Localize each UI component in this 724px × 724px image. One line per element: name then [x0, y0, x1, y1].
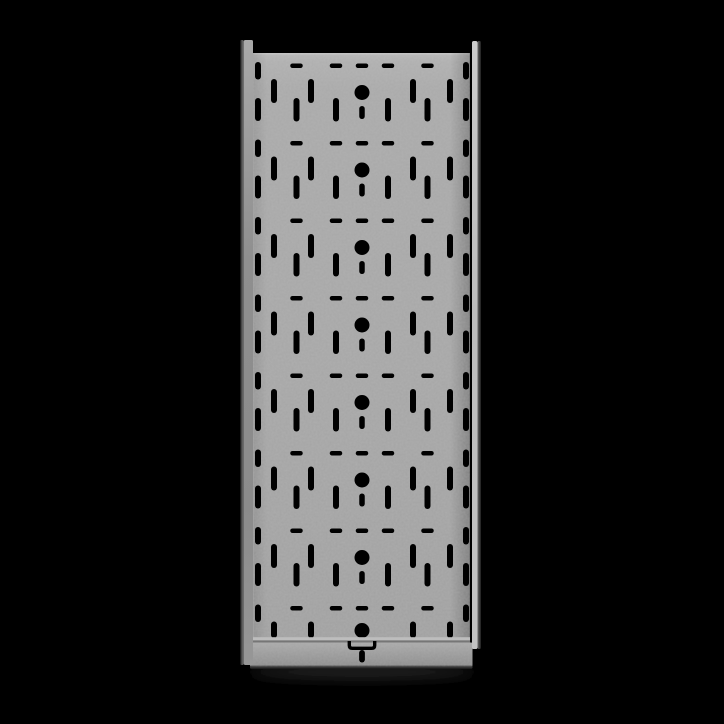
hole-edge-slot — [463, 527, 469, 545]
hole-edge-slot — [463, 372, 469, 390]
hole-inner-slot — [410, 312, 416, 336]
hole-dash — [382, 296, 395, 301]
hole-inner-slot — [410, 79, 416, 103]
hole-dash — [290, 606, 303, 611]
hole-inner-slot — [447, 234, 453, 258]
hole-dash — [382, 219, 395, 224]
hole-dash — [421, 606, 434, 611]
hole-circle — [355, 623, 370, 638]
hole-inner-slot — [410, 389, 416, 413]
hole-dash — [290, 374, 303, 379]
hole-inner-slot — [271, 389, 277, 413]
hole-inner-slot — [308, 157, 314, 181]
hole-inner-slot — [410, 544, 416, 568]
left-wall — [240, 40, 253, 665]
hole-edge-slot — [463, 253, 469, 276]
hole-dash — [382, 606, 395, 611]
cable-tray-render — [0, 0, 724, 724]
hole-inner-slot — [294, 331, 300, 355]
fold-highlight — [253, 637, 470, 640]
hole-dash — [382, 451, 395, 456]
right-wall — [472, 41, 481, 649]
hole-inner-slot — [410, 467, 416, 491]
hole-dash — [330, 374, 343, 379]
hole-inner-slot — [425, 563, 431, 587]
hole-edge-slot — [255, 486, 261, 509]
hole-inner-slot — [447, 467, 453, 491]
hole-dash — [290, 219, 303, 224]
hole-inner-slot — [385, 563, 391, 587]
hole-inner-slot — [410, 234, 416, 258]
hole-inner-slot — [447, 157, 453, 181]
hole-inner-slot — [333, 331, 339, 355]
hole-dash — [330, 219, 343, 224]
hole-inner-slot — [425, 176, 431, 200]
hole-edge-slot — [463, 140, 469, 158]
hole-inner-slot — [425, 98, 431, 122]
hole-inner-slot — [271, 467, 277, 491]
hole-inner-slot — [294, 98, 300, 122]
hole-inner-slot — [294, 253, 300, 277]
hole-inner-slot — [294, 176, 300, 200]
hole-dash — [421, 529, 434, 534]
hole-inner-slot — [308, 544, 314, 568]
hole-inner-slot — [385, 331, 391, 355]
hole-edge-slot — [463, 331, 469, 354]
hole-dash — [356, 141, 369, 146]
scene — [0, 0, 724, 724]
hole-inner-slot — [271, 544, 277, 568]
hole-dash — [330, 529, 343, 534]
hole-inner-slot — [308, 234, 314, 258]
hole-inner-slot — [447, 544, 453, 568]
hole-edge-slot — [463, 408, 469, 431]
hole-center-tick — [359, 571, 365, 584]
hole-center-tick — [359, 416, 365, 429]
hole-dash — [421, 141, 434, 146]
hole-dash — [330, 451, 343, 456]
hole-edge-slot — [255, 176, 261, 199]
hole-edge-slot — [255, 563, 261, 586]
hole-inner-slot — [294, 408, 300, 432]
hole-inner-slot — [333, 253, 339, 277]
hole-inner-slot — [447, 622, 453, 639]
hole-edge-slot — [255, 408, 261, 431]
hole-dash — [356, 64, 369, 69]
hole-dash — [356, 374, 369, 379]
hole-circle — [355, 550, 370, 565]
hole-inner-slot — [385, 176, 391, 200]
hole-edge-slot — [255, 527, 261, 545]
hole-inner-slot — [410, 157, 416, 181]
hole-edge-slot — [463, 62, 469, 80]
hole-inner-slot — [333, 176, 339, 200]
hole-dash — [356, 606, 369, 611]
hole-dash — [330, 141, 343, 146]
hole-dash — [290, 64, 303, 69]
hole-inner-slot — [425, 486, 431, 510]
hole-inner-slot — [271, 234, 277, 258]
hole-edge-slot — [255, 450, 261, 468]
fold-shadow — [253, 640, 470, 642]
hole-dash — [356, 219, 369, 224]
hole-edge-slot — [255, 605, 261, 623]
hole-dash — [382, 529, 395, 534]
hole-edge-slot — [463, 450, 469, 468]
hole-dash — [356, 451, 369, 456]
hole-dash — [356, 296, 369, 301]
hole-edge-slot — [255, 140, 261, 158]
hole-dash — [421, 296, 434, 301]
hole-edge-slot — [255, 295, 261, 313]
hole-inner-slot — [410, 622, 416, 639]
hole-inner-slot — [308, 79, 314, 103]
hole-dash — [382, 374, 395, 379]
hole-center-tick — [359, 106, 365, 119]
hole-inner-slot — [308, 467, 314, 491]
hole-dash — [290, 296, 303, 301]
hole-edge-slot — [255, 253, 261, 276]
hole-edge-slot — [255, 331, 261, 354]
hole-edge-slot — [463, 98, 469, 121]
hole-dash — [421, 64, 434, 69]
tab-center-slit — [359, 650, 365, 663]
hole-inner-slot — [333, 563, 339, 587]
hole-circle — [355, 240, 370, 255]
hole-inner-slot — [271, 157, 277, 181]
hole-center-tick — [359, 339, 365, 352]
hole-inner-slot — [308, 622, 314, 639]
hole-inner-slot — [271, 312, 277, 336]
hole-inner-slot — [447, 312, 453, 336]
hole-edge-slot — [463, 295, 469, 313]
right-wall-outer-edge — [478, 41, 482, 649]
hole-dash — [382, 64, 395, 69]
hole-inner-slot — [425, 253, 431, 277]
bottom-fold — [253, 637, 470, 642]
hole-dash — [421, 451, 434, 456]
hole-inner-slot — [308, 312, 314, 336]
hole-edge-slot — [463, 217, 469, 235]
hole-inner-slot — [308, 389, 314, 413]
hole-center-tick — [359, 184, 365, 197]
hole-edge-slot — [255, 372, 261, 390]
hole-inner-slot — [294, 486, 300, 510]
left-wall-face — [244, 40, 253, 665]
hole-edge-slot — [255, 217, 261, 235]
hole-inner-slot — [333, 408, 339, 432]
hole-edge-slot — [463, 486, 469, 509]
hole-inner-slot — [333, 98, 339, 122]
hole-dash — [330, 64, 343, 69]
hole-inner-slot — [271, 622, 277, 639]
hole-inner-slot — [385, 408, 391, 432]
hole-inner-slot — [447, 389, 453, 413]
hole-dash — [290, 451, 303, 456]
hole-edge-slot — [255, 62, 261, 80]
hole-edge-slot — [463, 176, 469, 199]
hole-inner-slot — [425, 331, 431, 355]
hole-dash — [330, 606, 343, 611]
hole-circle — [355, 473, 370, 488]
hole-inner-slot — [447, 79, 453, 103]
hole-dash — [382, 141, 395, 146]
hole-circle — [355, 395, 370, 410]
hole-dash — [290, 529, 303, 534]
hole-center-tick — [359, 494, 365, 507]
hole-inner-slot — [385, 253, 391, 277]
hole-inner-slot — [333, 486, 339, 510]
hole-dash — [356, 529, 369, 534]
hole-dash — [290, 141, 303, 146]
hole-edge-slot — [463, 563, 469, 586]
hole-inner-slot — [271, 79, 277, 103]
hole-inner-slot — [294, 563, 300, 587]
hole-inner-slot — [385, 98, 391, 122]
hole-inner-slot — [385, 486, 391, 510]
hole-inner-slot — [425, 408, 431, 432]
hole-center-tick — [359, 261, 365, 274]
hole-dash — [330, 296, 343, 301]
hole-circle — [355, 85, 370, 100]
right-wall-face — [472, 41, 478, 649]
hole-circle — [355, 163, 370, 178]
hole-edge-slot — [463, 605, 469, 623]
hole-circle — [355, 318, 370, 333]
hole-edge-slot — [255, 98, 261, 121]
left-wall-outer-edge — [240, 40, 244, 665]
hole-dash — [421, 219, 434, 224]
hole-dash — [421, 374, 434, 379]
